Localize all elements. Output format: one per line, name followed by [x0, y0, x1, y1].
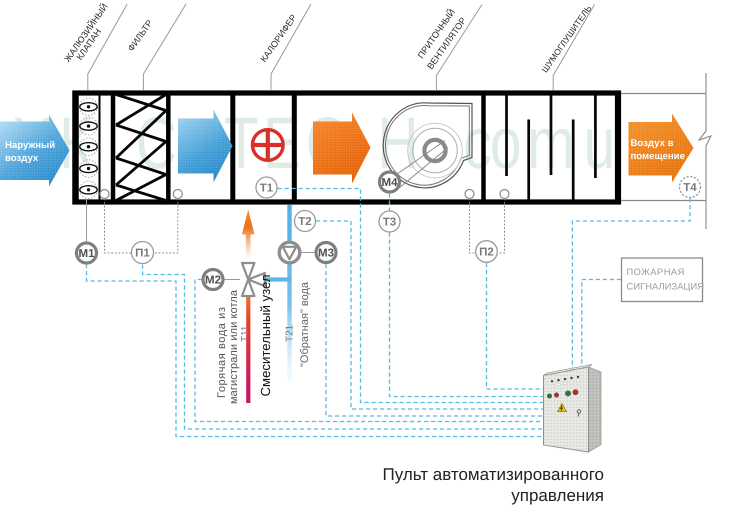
svg-text:М1: М1 [79, 248, 96, 260]
svg-text:Пульт автоматизированного: Пульт автоматизированного [382, 465, 604, 484]
svg-text:управления: управления [511, 486, 604, 505]
svg-text:с: с [463, 103, 491, 184]
svg-text:М2: М2 [205, 275, 221, 287]
svg-text:Т4: Т4 [683, 182, 697, 194]
svg-text:Воздух в: Воздух в [631, 138, 674, 149]
svg-text:СИГНАЛИЗАЦИЯ: СИГНАЛИЗАЦИЯ [627, 282, 705, 292]
svg-text:Т11: Т11 [240, 325, 251, 342]
svg-text:П2: П2 [479, 247, 494, 259]
svg-text:"Обратная" вода: "Обратная" вода [299, 281, 311, 367]
svg-text:Наружный: Наружный [5, 140, 55, 151]
svg-text:П1: П1 [135, 248, 150, 260]
svg-text:Т1: Т1 [260, 183, 274, 195]
svg-text:u: u [583, 103, 615, 184]
svg-text:ФИЛЬТР: ФИЛЬТР [126, 18, 155, 53]
svg-text:Т3: Т3 [383, 217, 396, 229]
svg-text:Горячая вода из: Горячая вода из [216, 306, 228, 398]
svg-text:КАЛОРИФЕР: КАЛОРИФЕР [258, 13, 298, 64]
svg-text:ПОЖАРНАЯ: ПОЖАРНАЯ [627, 267, 685, 277]
svg-text:ШУМОГЛУШИТЕЛЬ: ШУМОГЛУШИТЕЛЬ [540, 3, 594, 74]
svg-text:Т21: Т21 [285, 324, 296, 342]
svg-text:М3: М3 [318, 248, 334, 260]
svg-text:магистрали или котла: магистрали или котла [228, 289, 240, 404]
svg-text:Т2: Т2 [298, 216, 311, 228]
svg-text:Смесительный узел: Смесительный узел [258, 274, 273, 396]
svg-text:М4: М4 [382, 177, 399, 189]
svg-text:воздух: воздух [5, 153, 39, 164]
svg-text:помещение: помещение [631, 151, 685, 162]
